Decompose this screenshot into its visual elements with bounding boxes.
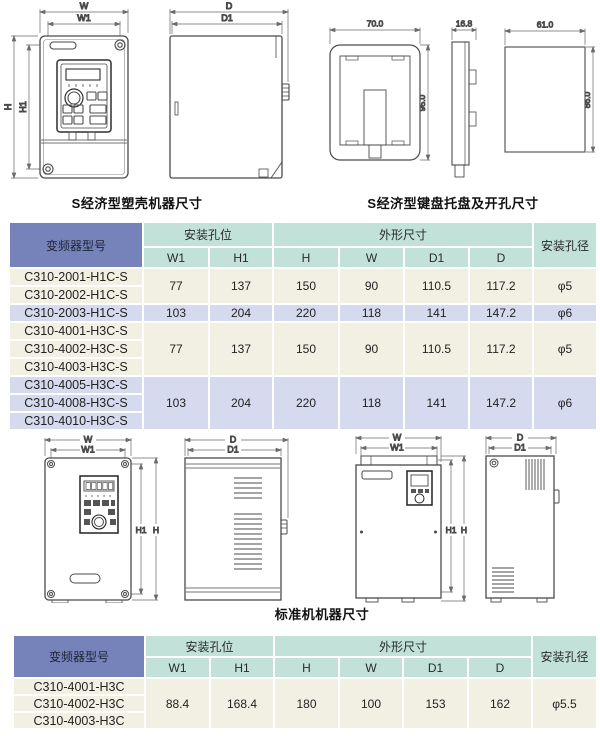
header-d: D: [470, 248, 532, 267]
value-cell: 117.2: [470, 323, 532, 375]
header-h: H: [274, 248, 338, 267]
hole-cell: φ6: [534, 377, 596, 429]
model-cell: C310-4002-H3C: [14, 696, 144, 711]
table-row: C310-2001-H1C-S 77 137 150 90 110.5 117.…: [10, 269, 596, 285]
caption-plastic-shell: S经济型塑壳机器尺寸: [27, 193, 247, 212]
dim-label-h: H: [461, 525, 467, 535]
value-cell: 137: [210, 323, 272, 375]
value-cell: 77: [144, 269, 208, 303]
dim-label-w1: W1: [390, 443, 404, 453]
dim-label-d1: D1: [227, 445, 239, 455]
cutout-view: 61.0 86.0: [505, 20, 595, 153]
clip: [469, 112, 476, 126]
hole-cell: φ5.5: [533, 679, 596, 728]
value-cell: 90: [340, 323, 403, 375]
value-cell: 180: [275, 679, 338, 728]
header-h: H: [275, 658, 338, 677]
model-cell: C310-4010-H3C-S: [10, 413, 142, 429]
dim-label-d: D: [517, 433, 524, 443]
header-d: D: [469, 658, 531, 677]
tray-side-view: 16.8: [452, 19, 476, 178]
value-cell: 220: [274, 305, 338, 321]
header-w: W: [340, 658, 402, 677]
standard-table: 变频器型号 安装孔位 外形尺寸 安装孔径 W1 H1 H W D1 D C310…: [12, 634, 598, 730]
vent-ribs: [526, 459, 544, 490]
dim-label-w: W: [80, 1, 89, 11]
tray-depth-label: 16.8: [456, 19, 473, 29]
value-cell: 150: [274, 323, 338, 375]
model-cell: C310-4001-H3C: [14, 679, 144, 694]
cutout-rect: [505, 47, 585, 152]
value-cell: 118: [340, 377, 403, 429]
value-cell: 153: [404, 679, 467, 728]
dim-label-h: H: [153, 525, 159, 535]
value-cell: 168.4: [211, 679, 273, 728]
s-series-table: 变频器型号 安装孔位 外形尺寸 安装孔径 W1 H1 H W D1 D C310…: [8, 221, 598, 431]
hole-cell: φ5: [534, 269, 596, 303]
table-row: C310-4001-H3C-S 77 137 150 90 110.5 117.…: [10, 323, 596, 339]
value-cell: 110.5: [405, 269, 468, 303]
mount-bracket: [361, 456, 437, 465]
value-cell: 147.2: [470, 305, 532, 321]
standard-side-view: D D1: [185, 435, 288, 601]
value-cell: 141: [405, 377, 468, 429]
dim-label-h: H: [3, 104, 13, 111]
caption-standard-machine: 标准机机器尺寸: [232, 604, 412, 623]
plastic-side-view: D D1: [170, 1, 289, 178]
value-cell: 103: [144, 305, 208, 321]
value-cell: 162: [469, 679, 531, 728]
standard-side-view-2: D D1: [486, 433, 559, 603]
value-cell: 147.2: [470, 377, 532, 429]
dim-label-w1: W1: [81, 445, 95, 455]
dim-label-d: D: [230, 435, 237, 445]
dim-label-d1: D1: [514, 443, 526, 453]
dim-label-w1: W1: [77, 13, 91, 23]
dim-label-w: W: [84, 435, 93, 445]
tray-front-view: 70.0 95.0: [330, 19, 430, 161]
dim-label-d1: D1: [221, 13, 233, 23]
model-cell: C310-2001-H1C-S: [10, 269, 142, 285]
header-model: 变频器型号: [14, 636, 144, 677]
table-row: C310-4005-H3C-S 103 204 220 118 141 147.…: [10, 377, 596, 393]
standard-table-wrap: 变频器型号 安装孔位 外形尺寸 安装孔径 W1 H1 H W D1 D C310…: [12, 634, 598, 730]
header-model: 变频器型号: [10, 223, 142, 267]
cutout-width-label: 61.0: [537, 20, 554, 30]
header-outline: 外形尺寸: [274, 223, 532, 246]
gland: [554, 490, 559, 503]
header-h1: H1: [210, 248, 272, 267]
clip: [469, 70, 476, 84]
model-cell: C310-4008-H3C-S: [10, 395, 142, 411]
value-cell: 103: [144, 377, 208, 429]
dim-label-w: W: [393, 433, 402, 443]
model-cell: C310-2002-H1C-S: [10, 287, 142, 303]
model-cell: C310-4003-H3C: [14, 713, 144, 728]
header-mount: 安装孔位: [146, 636, 273, 656]
caption-keypad-tray: S经济型键盘托盘及开孔尺寸: [343, 193, 563, 212]
header-outline: 外形尺寸: [275, 636, 531, 656]
value-cell: 204: [210, 305, 272, 321]
value-cell: 141: [405, 305, 468, 321]
value-cell: 100: [340, 679, 402, 728]
standard-front-view-2: W W1 H1 H: [356, 433, 467, 603]
header-hole: 安装孔径: [534, 223, 596, 267]
header-h1: H1: [211, 658, 273, 677]
value-cell: 220: [274, 377, 338, 429]
value-cell: 137: [210, 269, 272, 303]
value-cell: 110.5: [405, 323, 468, 375]
dim-label-h1: H1: [18, 101, 28, 113]
model-cell: C310-4001-H3C-S: [10, 323, 142, 339]
header-w1: W1: [146, 658, 209, 677]
header-d1: D1: [404, 658, 467, 677]
header-mount: 安装孔位: [144, 223, 272, 246]
header-hole: 安装孔径: [533, 636, 596, 677]
table-row: C310-2003-H1C-S 103 204 220 118 141 147.…: [10, 305, 596, 321]
standard-front-view: W W1 H1 H: [45, 435, 159, 604]
hole-cell: φ5: [534, 323, 596, 375]
value-cell: 88.4: [146, 679, 209, 728]
model-cell: C310-4002-H3C-S: [10, 341, 142, 357]
plastic-front-view: W W1 H H1: [3, 1, 128, 178]
s-series-table-wrap: 变频器型号 安装孔位 外形尺寸 安装孔径 W1 H1 H W D1 D C310…: [8, 221, 598, 431]
top-drawings: W W1 H H1: [0, 0, 600, 192]
middle-drawings: W W1 H1 H: [0, 432, 600, 603]
value-cell: 204: [210, 377, 272, 429]
value-cell: 117.2: [470, 269, 532, 303]
header-d1: D1: [405, 248, 468, 267]
hole-cell: φ6: [534, 305, 596, 321]
dim-label-h1: H1: [136, 525, 147, 535]
value-cell: 118: [340, 305, 403, 321]
vent-grid: [492, 568, 514, 592]
model-cell: C310-4003-H3C-S: [10, 359, 142, 375]
table-row: C310-4001-H3C 88.4 168.4 180 100 153 162…: [14, 679, 596, 694]
gland: [281, 520, 287, 534]
header-w1: W1: [144, 248, 208, 267]
tray-width-label: 70.0: [367, 19, 384, 29]
model-cell: C310-4005-H3C-S: [10, 377, 142, 393]
dim-label-d: D: [226, 1, 233, 11]
dimension-lines: [452, 28, 476, 41]
model-cell: C310-2003-H1C-S: [10, 305, 142, 321]
value-cell: 150: [274, 269, 338, 303]
header-w: W: [340, 248, 403, 267]
value-cell: 90: [340, 269, 403, 303]
value-cell: 77: [144, 323, 208, 375]
dim-label-h1: H1: [446, 525, 457, 535]
